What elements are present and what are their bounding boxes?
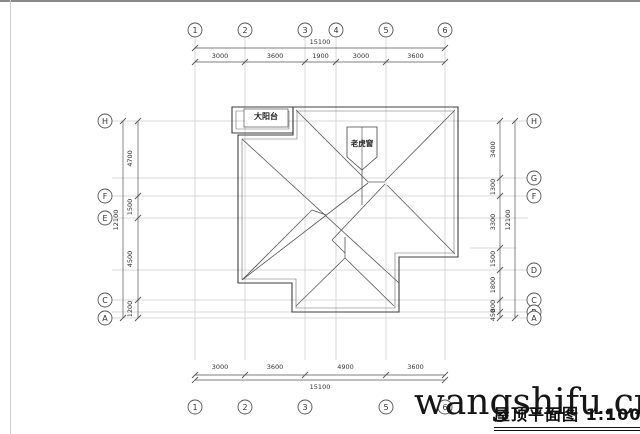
svg-text:450: 450 [489,309,497,321]
svg-text:15100: 15100 [310,38,331,46]
svg-text:12100: 12100 [504,210,512,231]
svg-text:3600: 3600 [267,52,284,60]
roof-plan-page: 1510030003600190030003600300036004900360… [0,0,640,434]
svg-text:A: A [531,314,537,323]
svg-text:2: 2 [242,403,247,412]
svg-text:C: C [531,296,537,305]
dormer-window-label: 老虎窗 [346,138,378,149]
svg-text:1800: 1800 [489,277,497,294]
svg-text:12100: 12100 [112,210,120,231]
svg-text:G: G [531,174,537,183]
svg-text:3: 3 [302,26,307,35]
svg-text:A: A [102,314,108,323]
svg-text:1200: 1200 [126,301,134,318]
svg-text:1900: 1900 [312,52,329,60]
svg-text:5: 5 [383,403,388,412]
svg-text:1300: 1300 [489,179,497,196]
svg-text:3000: 3000 [212,363,229,371]
svg-text:E: E [102,214,107,223]
svg-text:4: 4 [333,26,338,35]
balcony-label: 大阳台 [244,111,288,122]
svg-text:F: F [532,192,537,201]
roof-geometry [232,107,458,312]
dimension-annotations: 1510030003600190030003600300036004900360… [112,38,518,391]
svg-text:1: 1 [192,26,197,35]
svg-text:3: 3 [302,403,307,412]
drawing-title-label: 屋顶平面图 [494,405,579,424]
svg-text:4900: 4900 [337,363,354,371]
svg-text:3400: 3400 [489,141,497,158]
svg-text:2: 2 [242,26,247,35]
svg-text:4700: 4700 [126,150,134,167]
drawing-title: 屋顶平面图 1:100 [494,401,640,431]
roof-plan-drawing: 1510030003600190030003600300036004900360… [0,0,640,434]
svg-text:H: H [102,117,108,126]
svg-text:F: F [103,192,108,201]
svg-text:3300: 3300 [489,214,497,231]
svg-text:1500: 1500 [126,199,134,216]
svg-text:C: C [102,296,108,305]
drawing-scale: 1:100 [586,405,640,424]
svg-text:H: H [531,117,537,126]
svg-text:15100: 15100 [310,383,331,391]
svg-text:D: D [531,266,537,275]
svg-text:6: 6 [442,26,447,35]
svg-text:1500: 1500 [489,251,497,268]
svg-text:3000: 3000 [353,52,370,60]
svg-text:3600: 3600 [267,363,284,371]
svg-text:1: 1 [192,403,197,412]
svg-text:3000: 3000 [212,52,229,60]
svg-text:5: 5 [383,26,388,35]
svg-text:4500: 4500 [126,251,134,268]
svg-text:3600: 3600 [407,363,424,371]
svg-text:3600: 3600 [407,52,424,60]
